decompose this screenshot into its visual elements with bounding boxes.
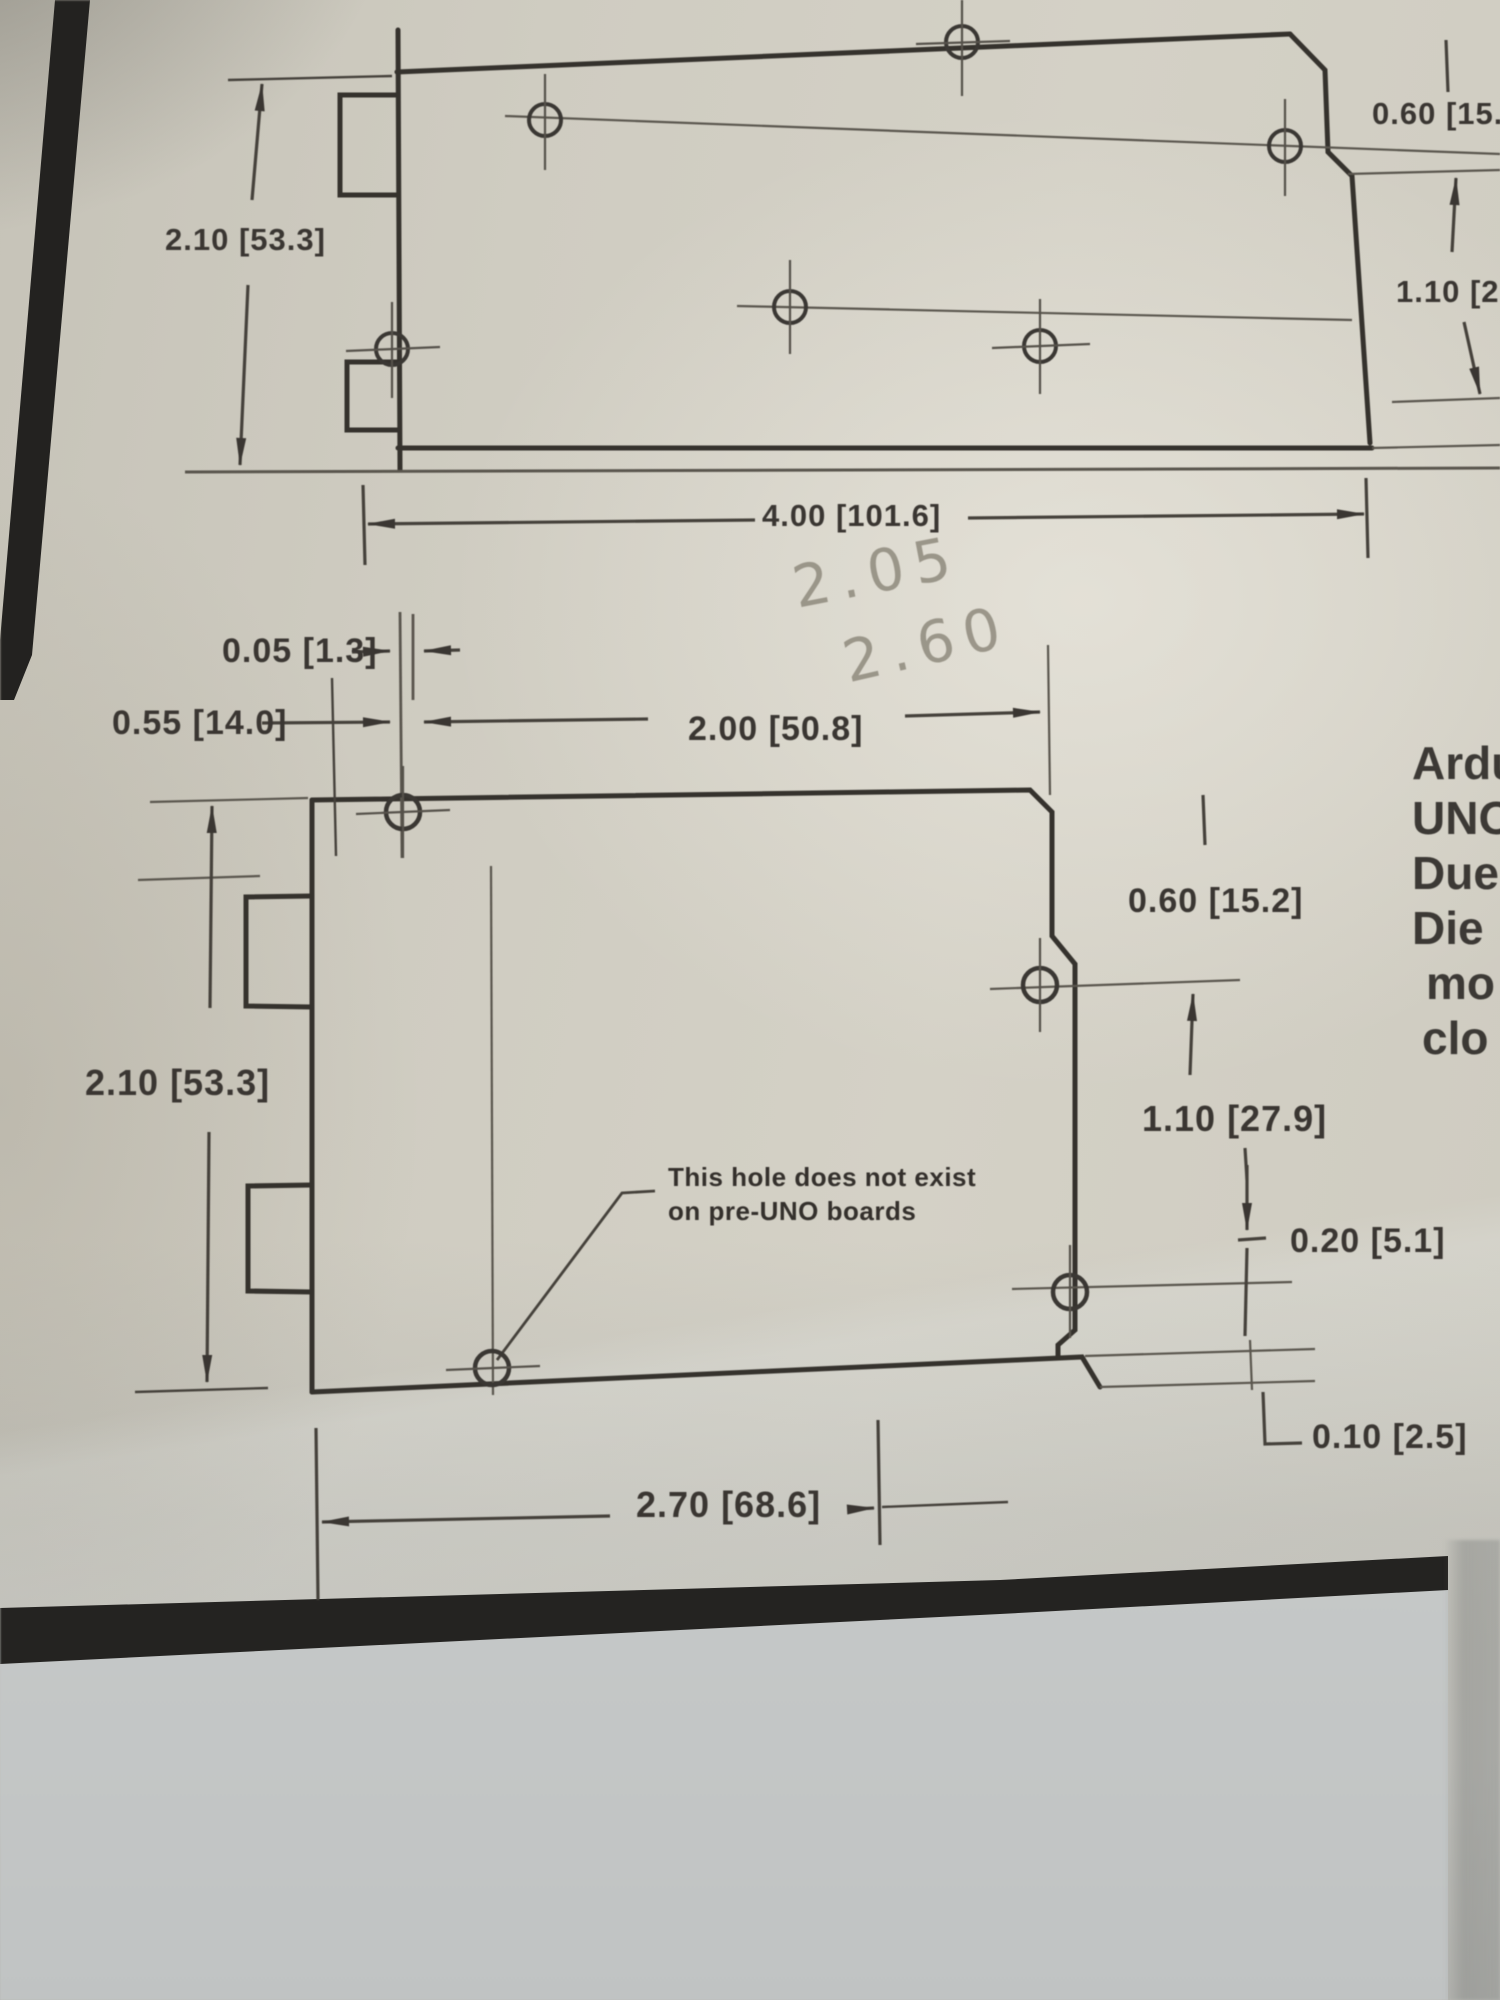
margin-text-line: Due (1412, 846, 1500, 901)
margin-paragraph: Ardu UNO Due Die mo clo (1412, 736, 1500, 1066)
dim-label-right-lower: 0.20 [5.1] (1290, 1222, 1446, 1261)
margin-text-line: clo (1422, 1011, 1500, 1066)
photo-of-dimension-drawing: 2.10 [53.3] 4.00 [101.6] 0.60 [15.2 1.10… (0, 0, 1500, 2000)
margin-text-line: Die (1412, 901, 1500, 956)
dim-label-hole-offset: 0.05 [1.3] (222, 632, 378, 671)
dim-label-upper-right-mid: 1.10 [2 (1396, 274, 1500, 310)
margin-text-line: Ardu (1412, 736, 1500, 791)
dim-label-lower-height: 2.10 [53.3] (85, 1062, 270, 1104)
hole-annotation: This hole does not exist on pre-UNO boar… (668, 1160, 976, 1228)
dim-label-left-inset: 0.55 [14.0] (112, 704, 287, 743)
margin-text-line: mo (1426, 956, 1500, 1011)
dim-label-upper-height: 2.10 [53.3] (165, 222, 326, 258)
dim-label-bottom-width: 2.70 [68.6] (636, 1484, 821, 1526)
hole-annotation-line2: on pre-UNO boards (668, 1194, 976, 1228)
hole-annotation-line1: This hole does not exist (668, 1160, 976, 1194)
dim-label-right-top: 0.60 [15.2] (1128, 882, 1303, 921)
drawing-text-layer: 2.10 [53.3] 4.00 [101.6] 0.60 [15.2 1.10… (0, 0, 1500, 2000)
dim-label-upper-right-top: 0.60 [15.2 (1372, 96, 1500, 132)
dim-label-upper-width: 4.00 [101.6] (762, 498, 941, 534)
dim-label-right-mid: 1.10 [27.9] (1142, 1098, 1327, 1140)
dim-label-right-bottom: 0.10 [2.5] (1312, 1418, 1468, 1457)
dim-label-top-width: 2.00 [50.8] (688, 710, 863, 749)
margin-text-line: UNO (1412, 791, 1500, 846)
